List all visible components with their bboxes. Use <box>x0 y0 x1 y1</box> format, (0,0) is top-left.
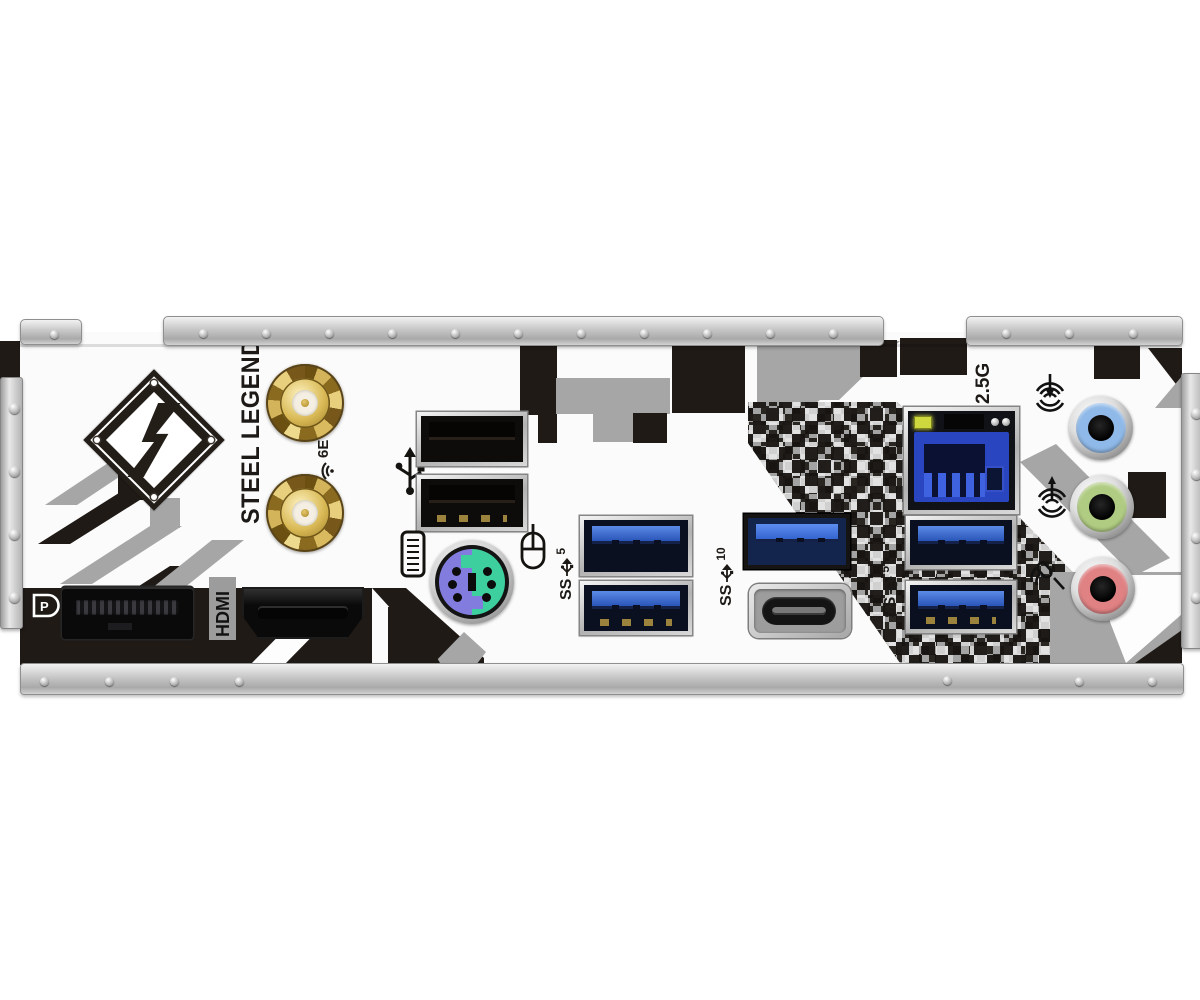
rivet <box>1075 677 1084 686</box>
jack-hole <box>1089 494 1115 520</box>
dp-key <box>108 623 132 630</box>
hdmi-port <box>242 587 364 639</box>
hdmi-label-strip: HDMI <box>209 577 236 640</box>
dp-letter: P <box>40 599 49 614</box>
hdmi-slot <box>258 606 348 619</box>
brand-text: STEEL LEGEND <box>238 349 262 524</box>
usb-type-c-port <box>749 584 851 638</box>
rivet <box>1065 329 1074 338</box>
ps2-combo-port <box>430 540 514 624</box>
lan-pin <box>991 418 999 426</box>
usb-contacts <box>437 515 507 522</box>
usb2-tongue <box>429 422 515 437</box>
camo-shape <box>556 378 670 414</box>
rivet <box>514 329 523 338</box>
rivet <box>50 330 59 339</box>
bracket-screw <box>9 466 20 477</box>
usbc-tongue <box>772 607 826 615</box>
rivet <box>325 329 334 338</box>
usb2-port-top <box>417 412 527 466</box>
keyboard-icon <box>400 530 426 578</box>
usb-cavity <box>584 585 688 631</box>
usb3-5gbps-port-bottom <box>580 581 692 635</box>
ps2-pin-hole <box>483 567 492 576</box>
rivet <box>105 677 114 686</box>
ps2-pin-hole <box>453 593 462 602</box>
rivet <box>235 677 244 686</box>
wifi-antenna-connector-top <box>266 364 344 442</box>
rivet <box>1148 677 1157 686</box>
bracket-screw <box>1191 532 1200 543</box>
usb3-5gbps-right-port-bottom <box>906 581 1016 633</box>
ss-text: SS <box>558 579 576 600</box>
usb-cavity <box>748 518 846 565</box>
usb-contacts <box>926 617 996 624</box>
lan-rj45-port <box>904 407 1019 514</box>
lan-inner <box>924 444 985 474</box>
bracket-screw <box>9 529 20 540</box>
ps2-green-tab <box>461 555 474 568</box>
ps2-pin-hole <box>487 580 496 589</box>
usb-cavity <box>421 416 523 462</box>
bracket-screw <box>9 403 20 414</box>
rivet <box>1002 329 1011 338</box>
bracket-screw <box>9 592 20 603</box>
dp-slot <box>76 600 179 615</box>
bracket-screw <box>1191 592 1200 603</box>
ps2-pin-hole <box>448 580 457 589</box>
rivet <box>1129 329 1138 338</box>
displayport <box>62 587 193 639</box>
lan-pin <box>1002 418 1010 426</box>
usb-cavity <box>584 520 688 572</box>
ps2-pin-hole <box>452 567 461 576</box>
displayport-logo-icon: P <box>31 590 61 622</box>
audio-line-in-jack <box>1069 396 1133 460</box>
lan-led <box>914 416 932 429</box>
io-shield-top-rail-right <box>966 316 1183 346</box>
hdmi-label: HDMI <box>212 579 234 637</box>
usb-ss-arrow-icon <box>560 557 574 577</box>
usb2-tongue <box>429 485 515 500</box>
motherboard-rear-io-photo: STEEL LEGEND 6E <box>0 0 1200 1000</box>
rivet <box>766 329 775 338</box>
line-out-icon <box>1032 474 1072 522</box>
usb-speed-label-right: SS 5 <box>880 562 902 618</box>
wifi-6e-icon: 6E <box>312 436 334 482</box>
rivet <box>262 329 271 338</box>
camo-shape <box>538 413 557 443</box>
ss-text: SS <box>718 585 736 606</box>
wifi-label: 6E <box>315 440 332 458</box>
wifi-arcs-icon <box>312 460 334 482</box>
usb3-tongue <box>756 524 838 539</box>
ps2-disc <box>439 549 505 615</box>
usb-speed-label-gen2: SS 10 <box>716 542 738 606</box>
rivet <box>829 329 838 338</box>
ps2-key-slot <box>468 573 476 591</box>
usb3-tongue <box>592 526 680 541</box>
rivet <box>640 329 649 338</box>
lan-speed-label: 2.5G <box>973 352 995 404</box>
rivet <box>703 329 712 338</box>
usb2-port-bottom <box>417 475 527 531</box>
ss-text: SS <box>882 597 900 618</box>
usb-contacts <box>600 619 672 626</box>
usbc-slot <box>762 597 836 625</box>
hdmi-text: HDMI <box>213 591 234 637</box>
io-shield-bottom-rail <box>20 663 1184 695</box>
antenna-pin <box>301 509 309 517</box>
io-shield-top-rail-main <box>163 316 884 346</box>
mouse-icon <box>518 524 548 570</box>
antenna-pin <box>301 399 309 407</box>
rivet <box>40 677 49 686</box>
ss-speed: 5 <box>878 566 892 573</box>
bracket-screw <box>1191 408 1200 419</box>
rivet <box>577 329 586 338</box>
steel-legend-s-logo <box>122 401 186 479</box>
audio-mic-jack <box>1071 557 1135 621</box>
lan-contacts <box>924 473 985 497</box>
camo-shape <box>633 413 667 443</box>
camo-shape <box>520 345 557 415</box>
ss-speed: 5 <box>554 548 568 555</box>
ps2-pin-hole <box>482 593 491 602</box>
usb-ss-arrow-icon <box>720 563 734 583</box>
wifi-antenna-connector-bottom <box>266 474 344 552</box>
rivet <box>170 677 179 686</box>
rivet <box>388 329 397 338</box>
usb3-tongue <box>918 591 1004 606</box>
logo-screw <box>151 380 157 386</box>
logo-screw <box>208 437 214 443</box>
lan-cavity <box>908 411 1015 510</box>
lan-housing <box>914 432 1009 502</box>
left-bracket <box>0 377 23 629</box>
lan-tab-slot <box>944 414 984 429</box>
usb-cavity <box>421 479 523 527</box>
jack-hole <box>1088 415 1114 441</box>
lan-speed-text: 2.5G <box>973 363 995 404</box>
usb3-5gbps-right-port-top <box>906 516 1016 569</box>
usb-ss-arrow-icon <box>884 575 898 595</box>
camo-shape <box>672 340 745 413</box>
usb3-10gbps-type-a-port <box>744 514 850 569</box>
usb3-tongue <box>918 526 1004 541</box>
mic-icon <box>1026 556 1072 602</box>
logo-screw <box>151 494 157 500</box>
usb-cavity <box>910 520 1012 565</box>
io-shield-panel <box>0 0 1200 1000</box>
usb3-tongue <box>592 591 680 606</box>
bracket-screw <box>1191 469 1200 480</box>
usb-speed-label-mid: SS 5 <box>556 544 578 600</box>
jack-hole <box>1090 576 1116 602</box>
line-in-icon <box>1030 372 1070 418</box>
audio-line-out-jack <box>1070 475 1134 539</box>
logo-screw <box>94 437 100 443</box>
rivet <box>451 329 460 338</box>
usb-cavity <box>910 585 1012 629</box>
rivet <box>943 676 952 685</box>
lan-latch <box>985 466 1004 492</box>
ss-speed: 10 <box>714 547 728 560</box>
usb3-5gbps-port-top <box>580 516 692 576</box>
rivet <box>199 329 208 338</box>
